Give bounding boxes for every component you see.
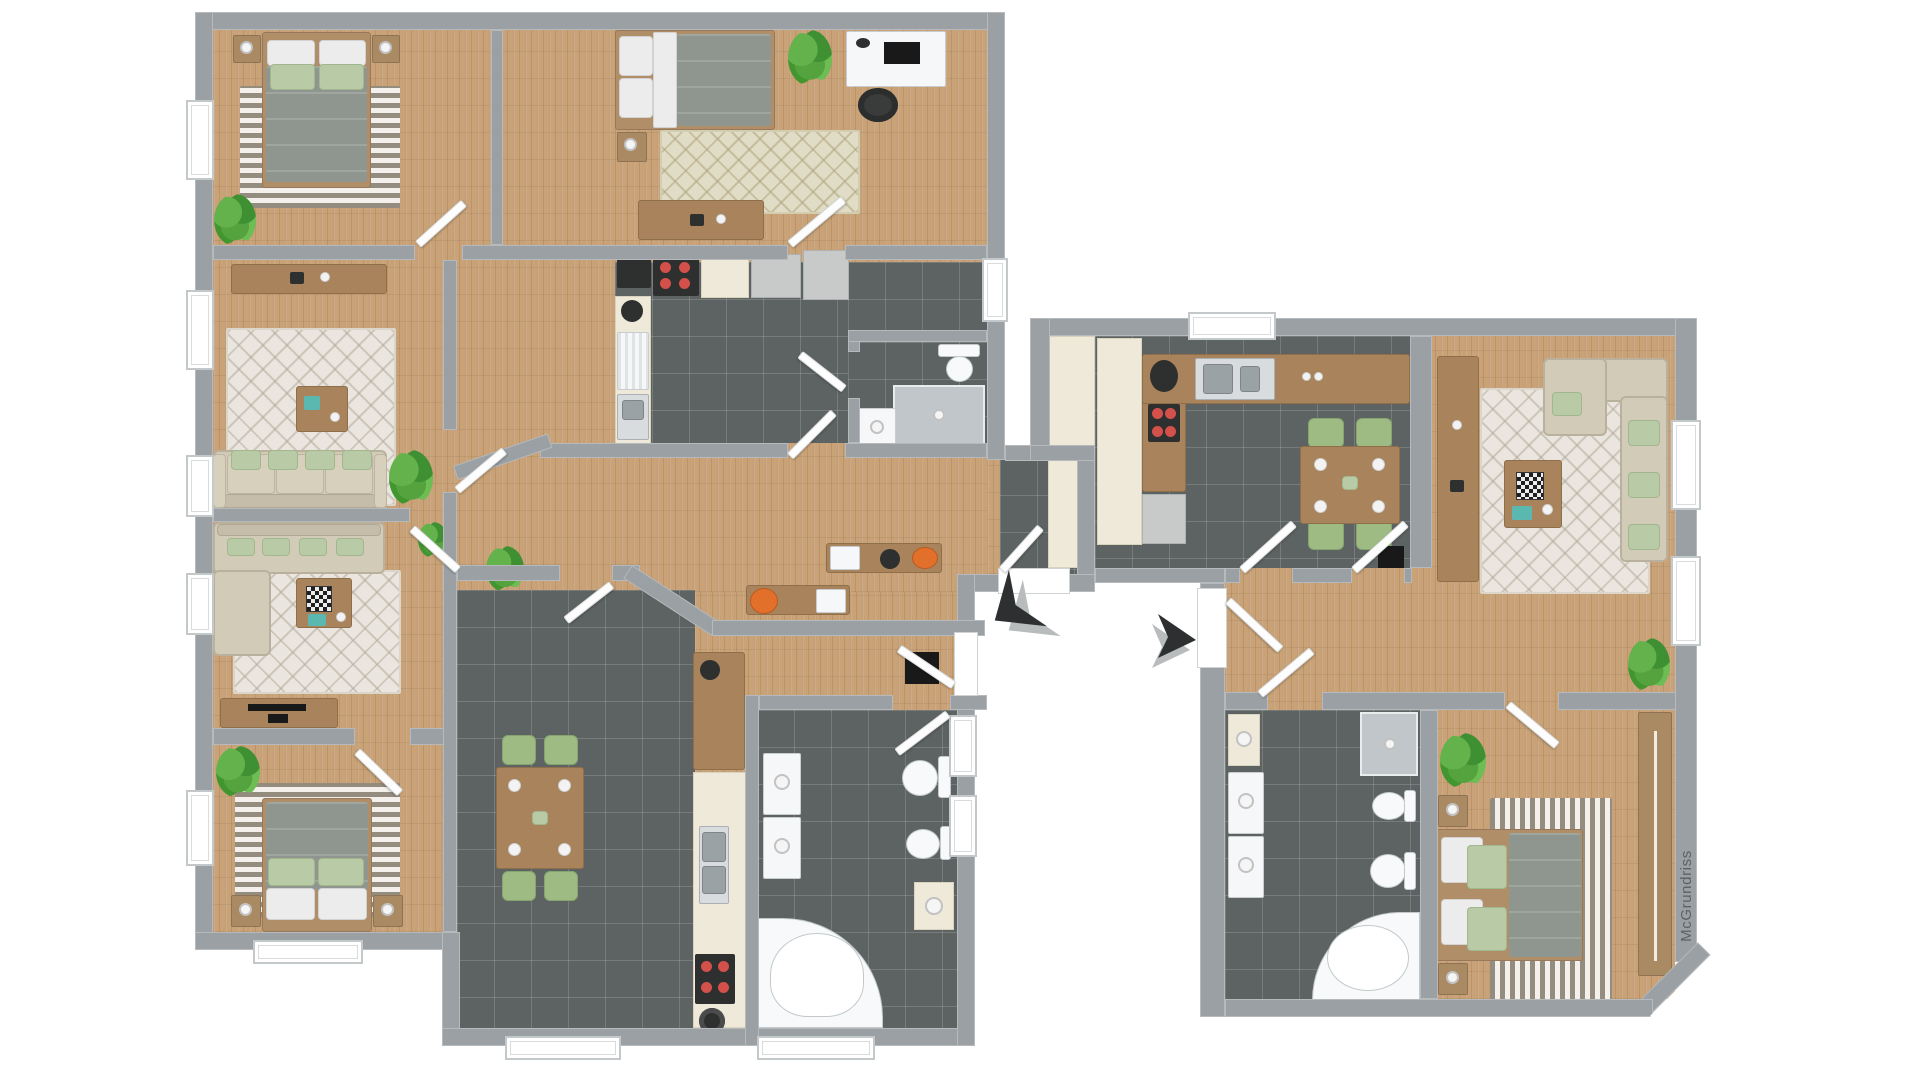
bidet-tank [1404, 790, 1416, 822]
wall [1410, 336, 1432, 568]
chair [544, 735, 578, 765]
wall [1200, 666, 1225, 1017]
wash-basin [1236, 731, 1252, 747]
corner-sofa [1543, 358, 1668, 562]
office-chair [750, 588, 778, 614]
wash-basin [925, 897, 943, 915]
table-lamp [624, 138, 637, 151]
double-bed [1433, 795, 1585, 995]
cup [330, 412, 340, 422]
chair [1308, 418, 1344, 448]
cooktop [1148, 404, 1180, 442]
pillow [268, 450, 298, 470]
dining-set [496, 735, 584, 901]
wall [1292, 568, 1352, 583]
window [186, 790, 214, 866]
wall [759, 695, 893, 710]
wall [213, 508, 410, 522]
pillow [1628, 524, 1660, 550]
table-lamp [239, 903, 252, 916]
toilet-bowl [902, 760, 938, 796]
cup [1542, 504, 1553, 515]
wall [1420, 710, 1438, 999]
decor [290, 272, 304, 284]
wall [195, 12, 1005, 30]
decor [1450, 480, 1464, 492]
media-box [268, 714, 288, 723]
decor [308, 614, 326, 626]
decor [304, 396, 320, 410]
tv-lowboard [220, 698, 338, 728]
washing-machine [1228, 772, 1264, 834]
watermark: McGrundriss [1675, 807, 1699, 985]
wall [1095, 568, 1225, 583]
cup [336, 612, 346, 622]
kitchen-tile-floor [848, 262, 987, 330]
window [757, 1036, 875, 1060]
window [949, 795, 977, 857]
wall [712, 620, 985, 636]
wall [950, 695, 987, 710]
desk-chair [858, 88, 898, 122]
shower [893, 385, 985, 445]
wall [848, 398, 860, 443]
dryer [763, 817, 801, 879]
window [186, 573, 214, 635]
pillow [1467, 907, 1507, 951]
wall [1030, 318, 1697, 336]
wall [443, 260, 457, 430]
table-lamp [379, 41, 392, 54]
pillow [262, 538, 290, 556]
window [982, 258, 1008, 322]
shower-drain [1384, 738, 1396, 750]
pillow [319, 64, 364, 90]
window [505, 1036, 621, 1060]
desk-accessory [856, 38, 870, 48]
wall [213, 245, 415, 260]
chessboard [1516, 472, 1544, 500]
window [186, 290, 214, 370]
wall [1322, 692, 1505, 710]
chair [544, 871, 578, 901]
table-lamp [1446, 803, 1459, 816]
decor [1512, 506, 1532, 520]
double-bed [233, 32, 400, 188]
chair [502, 735, 536, 765]
table-lamp [381, 903, 394, 916]
plant [1440, 733, 1486, 789]
window [1188, 312, 1276, 340]
chair [502, 871, 536, 901]
stove [653, 256, 699, 296]
sink-basin [622, 400, 644, 420]
pillow [266, 888, 315, 920]
wall [462, 245, 788, 260]
wardrobe [1638, 712, 1672, 976]
pillow [305, 450, 335, 470]
toilet-tank [1404, 852, 1416, 890]
pillow [1467, 845, 1507, 889]
kitchen-counter [701, 254, 749, 298]
chessboard [306, 586, 332, 612]
plant [214, 194, 256, 246]
pillow [227, 538, 255, 556]
dishwasher [617, 332, 649, 390]
blanket [653, 32, 677, 128]
entrance-door-apartment-b [954, 632, 978, 696]
pillow [619, 36, 653, 76]
pillow [319, 40, 366, 66]
pillow [299, 538, 327, 556]
entrance-arrow-right-icon [1146, 610, 1202, 672]
fridge [1142, 494, 1186, 544]
office-chair [912, 547, 938, 569]
toilet-bowl [946, 356, 973, 382]
pillow [336, 538, 364, 556]
decor [716, 214, 726, 224]
table-lamp [1446, 971, 1459, 984]
decor [1314, 372, 1323, 381]
pillow [267, 40, 315, 66]
bed-duvet [1509, 833, 1581, 957]
tv [248, 704, 306, 711]
wall [213, 728, 355, 745]
vanity [914, 882, 954, 930]
wall [745, 695, 759, 1046]
chair [1356, 418, 1392, 448]
stove [695, 954, 735, 1004]
drawer-unit [816, 589, 846, 613]
kitchen-counter [1142, 354, 1410, 404]
pillow [318, 858, 364, 886]
wall [1404, 568, 1412, 583]
window [1671, 556, 1701, 646]
wall [1225, 568, 1240, 583]
shower-drain [933, 409, 945, 421]
floor-plan: McGrundriss [0, 0, 1920, 1080]
pillow [1552, 392, 1582, 416]
wall [987, 12, 1005, 460]
tall-cabinet [1097, 338, 1142, 545]
centerpiece [1342, 476, 1358, 490]
shower [1360, 712, 1418, 776]
wall [848, 330, 987, 342]
kitchen-cabinet [751, 254, 801, 298]
plant [1628, 638, 1670, 692]
drawer-unit [830, 546, 860, 570]
wall [491, 30, 503, 245]
pillow [619, 78, 653, 118]
window [1671, 420, 1701, 510]
centerpiece [532, 811, 548, 825]
wall [1030, 445, 1095, 461]
sofa [213, 450, 387, 512]
wall [1225, 999, 1653, 1017]
toilet-bowl [1370, 854, 1406, 888]
decor [1150, 360, 1178, 392]
plant [389, 450, 433, 506]
chair [1308, 520, 1344, 550]
double-bed [231, 798, 403, 932]
dining-set [1300, 418, 1400, 550]
window [186, 100, 214, 180]
pillow [1628, 472, 1660, 498]
window [253, 940, 363, 964]
bidet [906, 829, 940, 859]
dryer [1228, 836, 1264, 898]
plant [788, 30, 832, 86]
pillow [1628, 420, 1660, 446]
sideboard [231, 264, 387, 294]
wall [845, 245, 987, 260]
washing-machine [763, 753, 801, 815]
window [186, 455, 214, 517]
kettle [621, 300, 643, 322]
pillow [318, 888, 367, 920]
decor [690, 214, 704, 226]
window [949, 715, 977, 777]
decor [1302, 372, 1311, 381]
pillow [268, 858, 315, 886]
washing-machine [858, 408, 896, 446]
stool [880, 549, 900, 569]
wall [845, 443, 987, 458]
bed-duvet [677, 34, 771, 126]
pillow [342, 450, 372, 470]
monitor [884, 42, 920, 64]
plant [216, 746, 260, 798]
wall [1077, 445, 1095, 592]
bidet [1372, 792, 1406, 820]
wall [1068, 574, 1095, 592]
pillow [231, 450, 261, 470]
sideboard [1437, 356, 1479, 582]
wall [457, 565, 560, 581]
wall [540, 443, 788, 458]
decor [1452, 420, 1462, 430]
kettle [700, 660, 720, 680]
vanity [1228, 714, 1260, 766]
single-bed [615, 30, 775, 130]
pillow [270, 64, 315, 90]
decor [320, 272, 330, 282]
table-lamp [240, 41, 253, 54]
wall [1030, 318, 1050, 461]
kitchen-cabinet [803, 250, 849, 300]
